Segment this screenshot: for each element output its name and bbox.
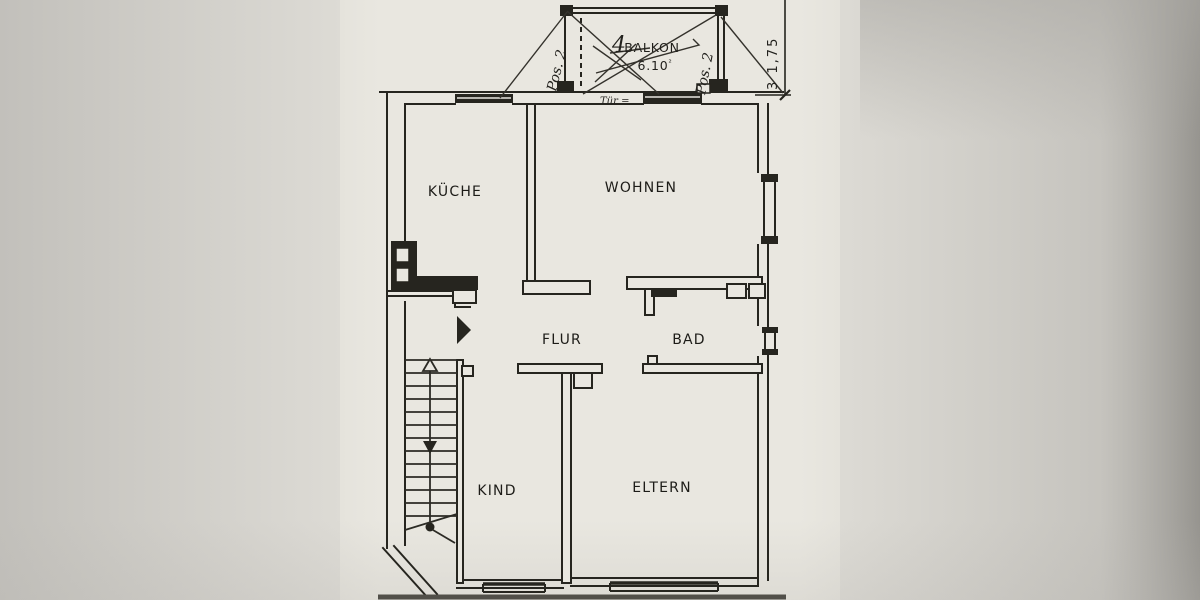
room-label-kueche: KÜCHE bbox=[428, 182, 482, 200]
balcony-door bbox=[643, 92, 702, 104]
room-label-wohnen: WOHNEN bbox=[605, 180, 677, 196]
handwritten-number: 4 bbox=[611, 33, 626, 58]
paper-background bbox=[0, 0, 1200, 600]
room-label-balkon: BALKON bbox=[624, 40, 680, 55]
room-label-kind: KIND bbox=[477, 483, 516, 499]
floor-plan-scan: KÜCHE WOHNEN FLUR BAD KIND ELTERN BALKON… bbox=[0, 0, 1200, 600]
room-label-flur: FLUR bbox=[542, 332, 582, 348]
dimension-text: 3 1,75 bbox=[766, 37, 781, 90]
bath-fixture-dark bbox=[651, 289, 677, 297]
staircase bbox=[405, 359, 457, 543]
bath-fixtures bbox=[727, 284, 765, 298]
floor-plan-photo: KÜCHE WOHNEN FLUR BAD KIND ELTERN BALKON… bbox=[0, 0, 1200, 600]
room-label-eltern: ELTERN bbox=[632, 480, 692, 496]
handwritten-door-note: Tür = bbox=[600, 96, 629, 107]
balcony-area-label: 6.10² bbox=[637, 58, 672, 73]
room-label-bad: BAD bbox=[672, 332, 706, 348]
